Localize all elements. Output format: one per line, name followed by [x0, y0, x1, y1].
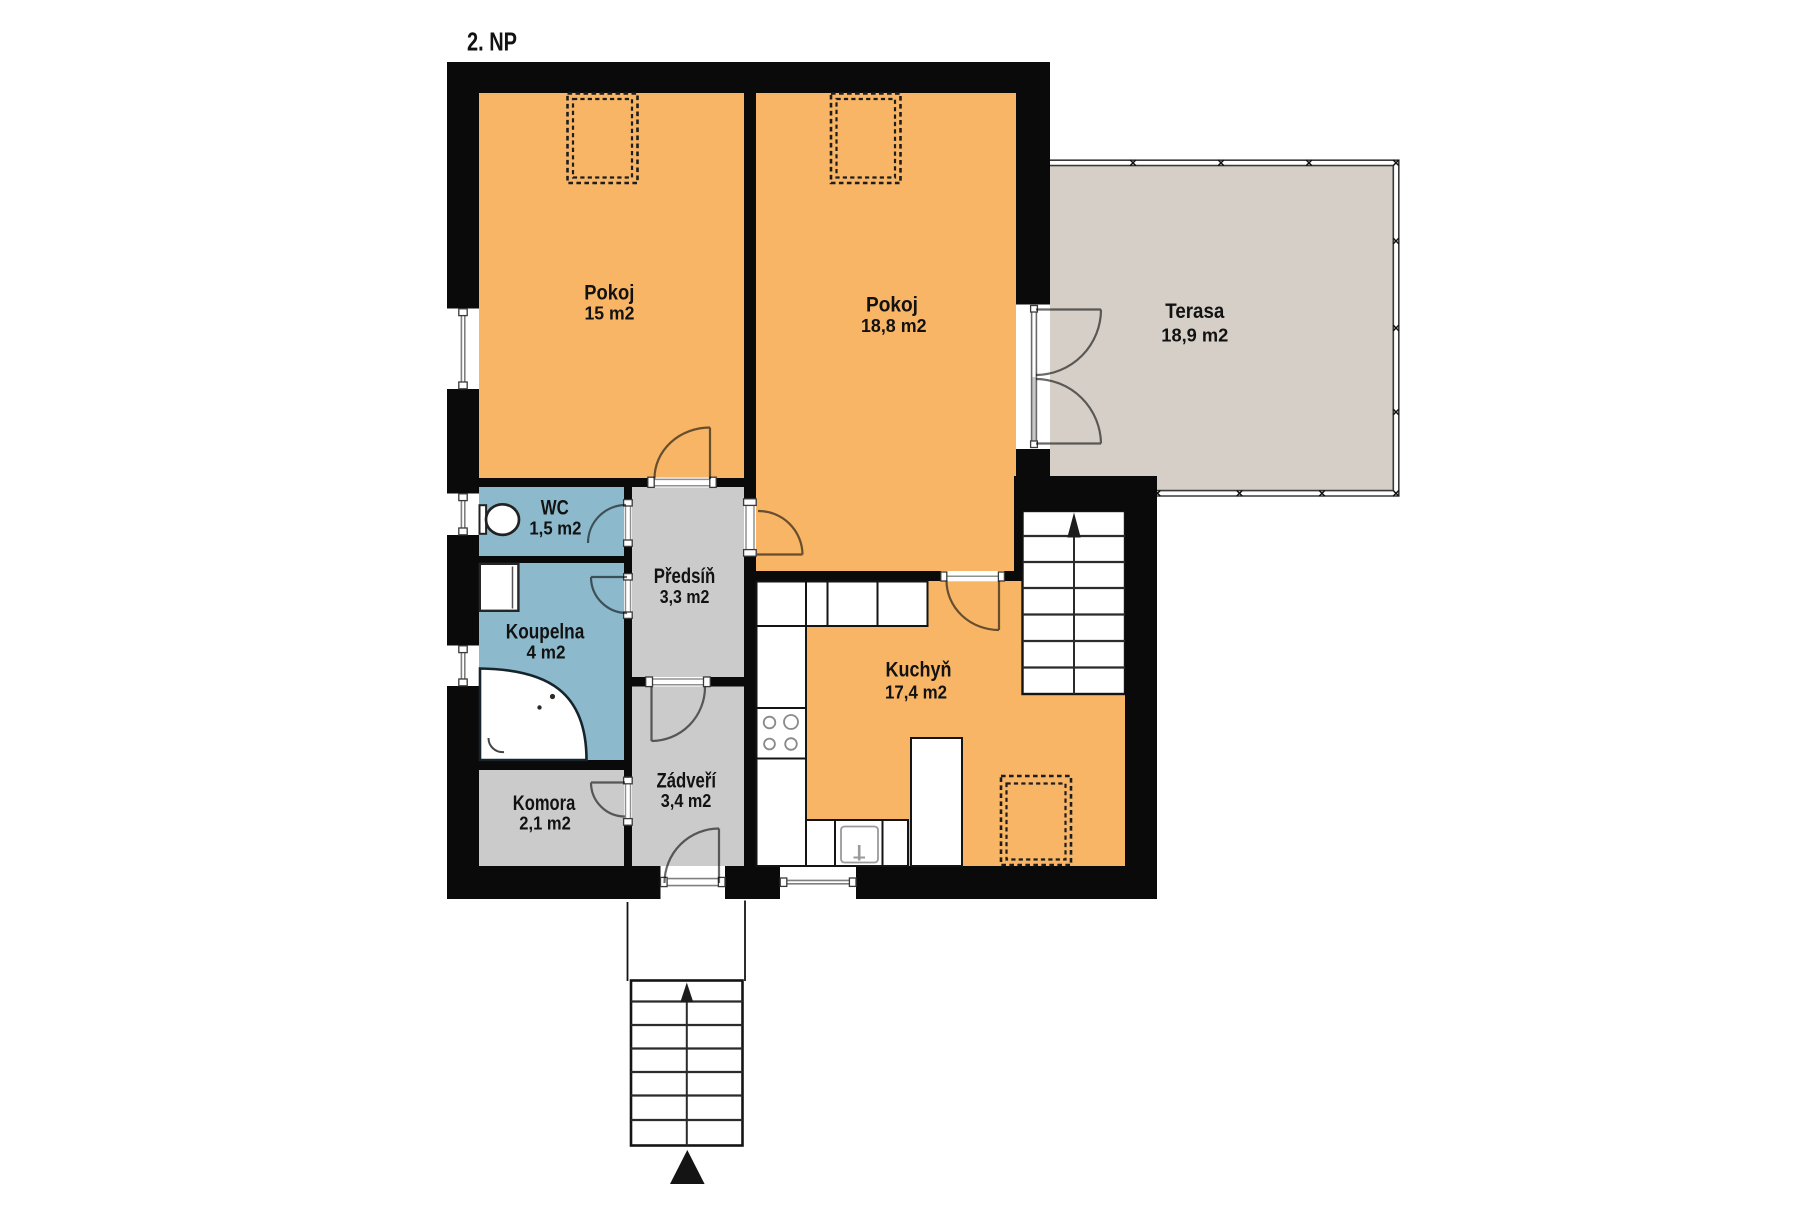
svg-text:WC: WC — [541, 496, 569, 520]
svg-text:15 m2: 15 m2 — [585, 302, 635, 323]
svg-text:18,8 m2: 18,8 m2 — [861, 315, 927, 336]
svg-text:Koupelna: Koupelna — [506, 621, 585, 644]
svg-text:2,1 m2: 2,1 m2 — [519, 814, 571, 834]
svg-text:17,4 m2: 17,4 m2 — [885, 682, 947, 703]
svg-text:4 m2: 4 m2 — [527, 642, 566, 662]
svg-text:3,4 m2: 3,4 m2 — [661, 791, 712, 811]
svg-text:1,5 m2: 1,5 m2 — [529, 517, 581, 538]
svg-text:Komora: Komora — [513, 792, 576, 815]
svg-text:3,3 m2: 3,3 m2 — [660, 587, 710, 607]
svg-text:Kuchyň: Kuchyň — [886, 659, 952, 682]
svg-text:Terasa: Terasa — [1165, 299, 1225, 323]
svg-text:Pokoj: Pokoj — [584, 280, 634, 304]
svg-text:Předsíň: Předsíň — [654, 565, 716, 588]
svg-text:Pokoj: Pokoj — [866, 293, 918, 317]
svg-text:2. NP: 2. NP — [467, 27, 517, 57]
svg-text:18,9 m2: 18,9 m2 — [1161, 325, 1228, 346]
svg-text:Zádveří: Zádveří — [657, 770, 717, 793]
